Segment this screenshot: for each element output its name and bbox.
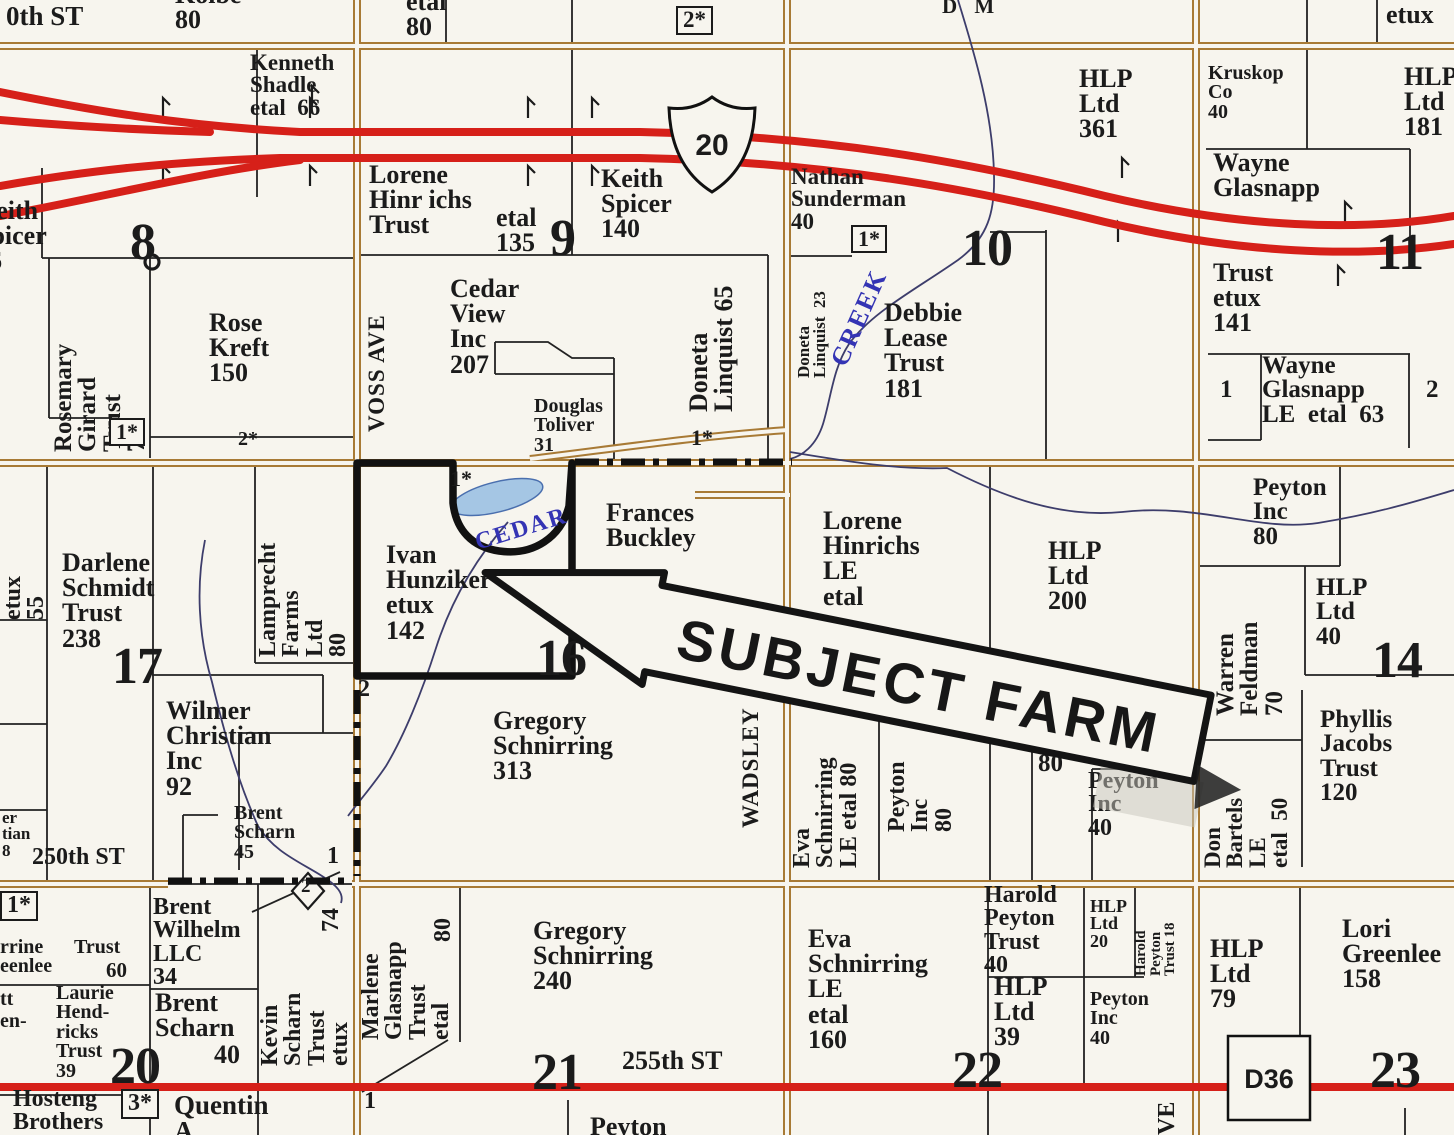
us20-shield: 20 [669, 97, 755, 192]
dash-dot-boundary [168, 462, 792, 881]
creek-doneta [790, 0, 994, 459]
pond [448, 471, 546, 523]
map-base-layer: 20 D36 [0, 0, 1454, 1135]
creek-west [200, 540, 342, 903]
us20-number: 20 [695, 129, 728, 162]
highways-red [0, 92, 1454, 1087]
creek-cedar [348, 522, 508, 816]
survey-ticks [163, 86, 1352, 286]
d36-marker: D36 [1228, 1036, 1310, 1120]
d36-number: D36 [1244, 1064, 1294, 1094]
plat-map: 20 D36 0th STKolbe80etal802*D MetuxKenne… [0, 0, 1454, 1135]
